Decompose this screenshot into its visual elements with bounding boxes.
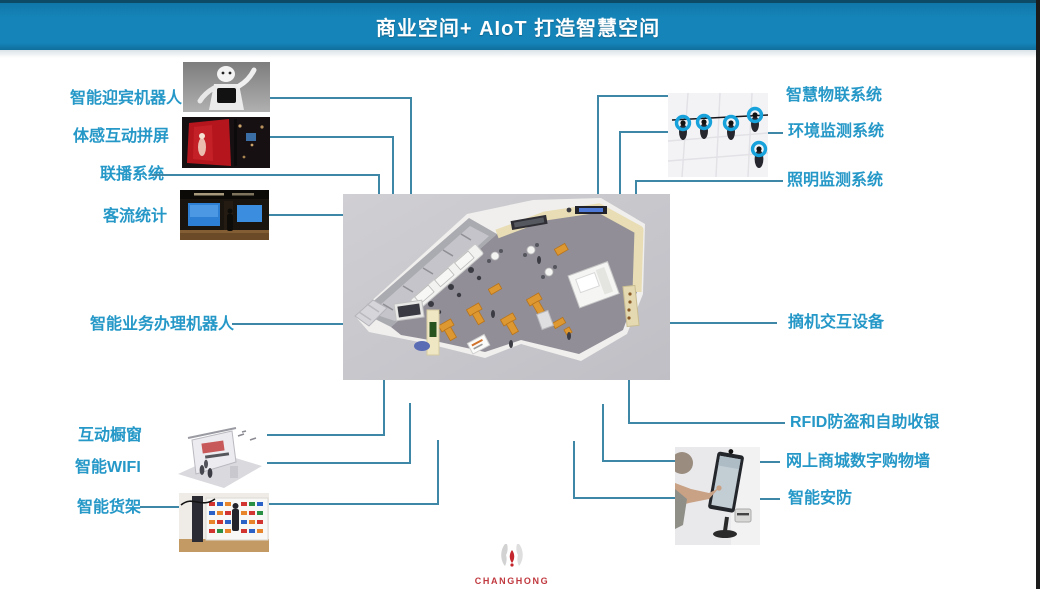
photo-kiosk-touch (675, 447, 760, 545)
connector-line (140, 506, 179, 508)
label-welcome-robot: 智能迎宾机器人 (70, 91, 182, 107)
label-motion-screen: 体感互动拼屏 (73, 129, 169, 145)
label-smart-security: 智能安防 (788, 491, 852, 507)
changhong-logo-icon (495, 542, 529, 570)
label-rfid-checkout: RFID防盗和自助收银 (790, 415, 939, 431)
connector-line (602, 404, 604, 462)
connector-line (265, 434, 385, 436)
label-customer-flow: 客流统计 (103, 209, 167, 225)
connector-line (383, 376, 385, 436)
label-light-monitoring: 照明监测系统 (787, 173, 883, 189)
connector-line (265, 462, 411, 464)
label-smart-shelf: 智能货架 (77, 500, 141, 516)
header-shadow (0, 50, 1036, 58)
label-env-monitoring: 环境监测系统 (788, 124, 884, 140)
floorplan-image (343, 194, 670, 380)
brand-footer: CHANGHONG (462, 542, 562, 586)
photo-storefront (180, 190, 269, 240)
photo-store-model (172, 426, 267, 490)
connector-line (597, 95, 599, 208)
brand-name: CHANGHONG (462, 576, 562, 586)
connector-line (152, 174, 380, 176)
label-digital-shopping-wall: 网上商城数字购物墙 (786, 454, 930, 470)
connector-line (628, 422, 785, 424)
connector-line (270, 136, 394, 138)
connector-line (760, 498, 780, 500)
photo-iot-topview (668, 93, 768, 177)
connector-line (573, 497, 676, 499)
photo-welcome-robot (183, 62, 270, 112)
label-service-robot: 智能业务办理机器人 (90, 317, 234, 333)
header-bar: 商业空间+ AIoT 打造智慧空间 (0, 0, 1036, 50)
slide-smart-commercial-space: 商业空间+ AIoT 打造智慧空间 智能迎宾机器人 体感互动拼屏 联播系统 客流… (0, 0, 1040, 589)
connector-line (628, 376, 630, 423)
label-interactive-window: 互动橱窗 (78, 428, 142, 444)
connector-line (573, 441, 575, 499)
connector-line (760, 461, 780, 463)
connector-line (635, 180, 783, 182)
connector-line (270, 97, 412, 99)
connector-line (602, 460, 676, 462)
connector-line (437, 440, 439, 505)
label-iot-system: 智慧物联系统 (786, 88, 882, 104)
label-offhook-device: 摘机交互设备 (788, 315, 884, 331)
label-smart-wifi: 智能WIFI (75, 460, 141, 476)
connector-line (409, 403, 411, 464)
connector-line (268, 503, 439, 505)
photo-motion-screen (182, 117, 270, 168)
photo-smart-shelf (179, 493, 269, 552)
page-title: 商业空间+ AIoT 打造智慧空间 (376, 12, 660, 41)
connector-line (619, 131, 670, 133)
connector-line (597, 95, 670, 97)
connector-line (768, 132, 783, 134)
